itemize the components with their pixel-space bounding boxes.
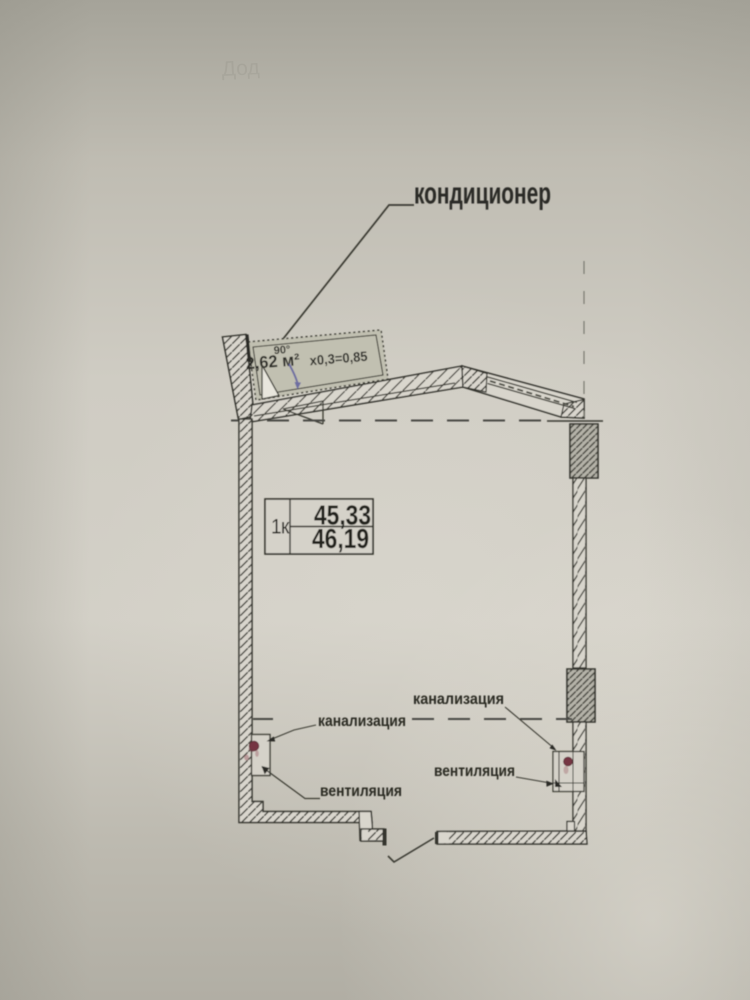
svg-text:46,19: 46,19 <box>312 523 369 555</box>
svg-text:вентиляция: вентиляция <box>434 763 515 780</box>
svg-text:Дод: Дод <box>221 56 260 81</box>
svg-text:канализация: канализация <box>318 713 406 730</box>
svg-text:вентиляция: вентиляция <box>320 783 402 800</box>
svg-text:канализация: канализация <box>413 691 504 708</box>
svg-text:1к: 1к <box>271 516 290 539</box>
svg-text:90°: 90° <box>273 344 291 357</box>
svg-text:кондиционер: кондиционер <box>414 176 551 210</box>
